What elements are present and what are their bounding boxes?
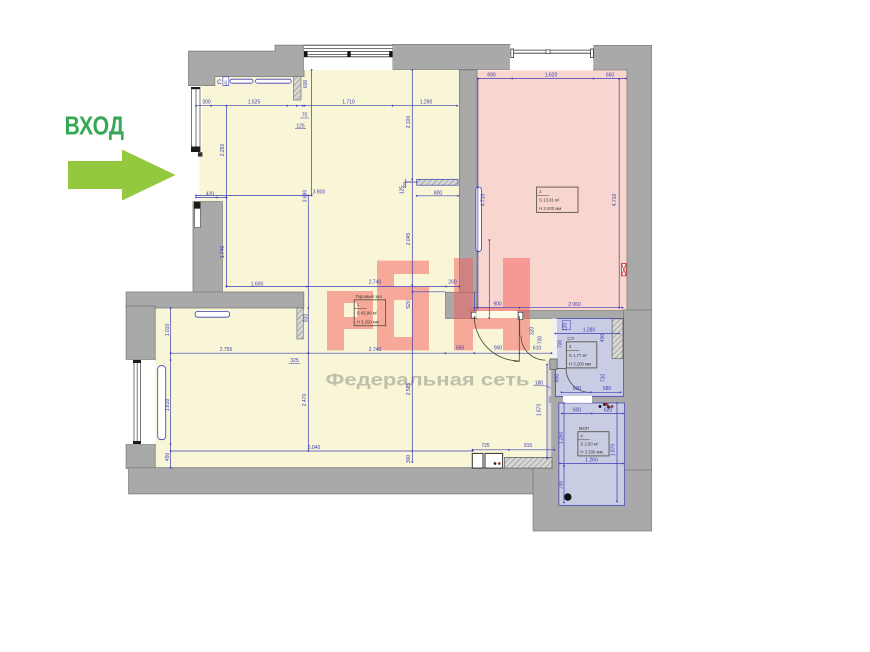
svg-text:ВХОД: ВХОД	[65, 111, 125, 141]
svg-text:650: 650	[606, 73, 615, 79]
svg-text:730: 730	[559, 481, 565, 490]
svg-text:S 2,50 м²: S 2,50 м²	[580, 442, 599, 447]
svg-text:2.740: 2.740	[369, 347, 382, 353]
svg-text:710: 710	[601, 374, 607, 383]
svg-text:2.250: 2.250	[220, 144, 226, 157]
svg-text:700: 700	[538, 336, 544, 345]
svg-text:С: С	[217, 79, 222, 86]
svg-text:2.100: 2.100	[406, 116, 412, 129]
svg-text:125: 125	[400, 186, 406, 195]
svg-text:610: 610	[533, 346, 542, 352]
svg-text:Федеральная сеть: Федеральная сеть	[326, 370, 530, 390]
svg-text:1.870: 1.870	[537, 404, 543, 417]
svg-text:2.470: 2.470	[302, 394, 308, 407]
svg-text:300: 300	[406, 455, 412, 464]
svg-text:700: 700	[558, 340, 564, 349]
svg-text:260: 260	[448, 280, 457, 286]
svg-text:690: 690	[487, 73, 496, 79]
svg-text:600: 600	[555, 374, 561, 383]
svg-text:4.710: 4.710	[481, 194, 487, 207]
svg-text:600: 600	[573, 386, 582, 392]
svg-text:1.525: 1.525	[248, 100, 261, 106]
svg-text:Торговый зал: Торговый зал	[355, 294, 382, 299]
svg-text:320: 320	[530, 327, 536, 336]
svg-text:450: 450	[165, 453, 171, 462]
svg-text:С/У: С/У	[567, 336, 574, 341]
svg-text:2.740: 2.740	[369, 280, 382, 286]
svg-text:580: 580	[603, 386, 612, 392]
svg-text:1.610: 1.610	[165, 399, 171, 412]
svg-text:2.045: 2.045	[406, 233, 412, 246]
svg-text:420: 420	[206, 192, 215, 198]
svg-text:2.585: 2.585	[406, 383, 412, 396]
svg-text:900: 900	[493, 302, 502, 308]
svg-text:1.260: 1.260	[559, 432, 565, 445]
svg-text:1.600: 1.600	[251, 282, 264, 288]
svg-text:2 060: 2 060	[568, 302, 581, 308]
svg-text:725: 725	[481, 443, 490, 449]
svg-text:H 3 200 мм: H 3 200 мм	[580, 450, 602, 455]
svg-text:520: 520	[406, 300, 412, 309]
svg-text:3 800: 3 800	[313, 190, 326, 196]
svg-text:800: 800	[434, 190, 443, 196]
svg-text:1 260: 1 260	[585, 458, 598, 464]
svg-text:1.010: 1.010	[165, 324, 171, 337]
svg-text:400: 400	[600, 334, 606, 343]
svg-text:600: 600	[573, 408, 582, 414]
svg-text:1.970: 1.970	[611, 444, 617, 457]
svg-text:550: 550	[456, 346, 465, 352]
svg-text:70: 70	[302, 113, 308, 119]
svg-text:S 13,91 м²: S 13,91 м²	[539, 198, 560, 203]
svg-text:1.280: 1.280	[583, 328, 596, 334]
svg-text:1.290: 1.290	[420, 100, 433, 106]
svg-text:620: 620	[604, 408, 613, 414]
svg-text:900: 900	[494, 346, 503, 352]
svg-text:S 43,96 м²: S 43,96 м²	[357, 311, 378, 316]
svg-text:МОП: МОП	[579, 426, 589, 431]
svg-text:6.040: 6.040	[308, 445, 321, 451]
svg-text:4.710: 4.710	[612, 194, 618, 207]
svg-text:915: 915	[524, 443, 533, 449]
svg-text:300: 300	[202, 100, 211, 106]
svg-text:H 3.200 мм: H 3.200 мм	[539, 206, 561, 211]
svg-text:1.710: 1.710	[342, 100, 355, 106]
svg-text:600: 600	[303, 80, 309, 89]
svg-text:1.740: 1.740	[220, 246, 226, 259]
svg-text:2.755: 2.755	[220, 347, 233, 353]
svg-text:H 3.200 мм: H 3.200 мм	[569, 361, 591, 366]
svg-text:S 1,77 м²: S 1,77 м²	[569, 353, 588, 358]
svg-text:1.620: 1.620	[545, 73, 558, 79]
svg-text:180: 180	[224, 81, 228, 87]
svg-text:120: 120	[563, 323, 569, 332]
svg-text:H 3.200 мм: H 3.200 мм	[357, 319, 379, 324]
